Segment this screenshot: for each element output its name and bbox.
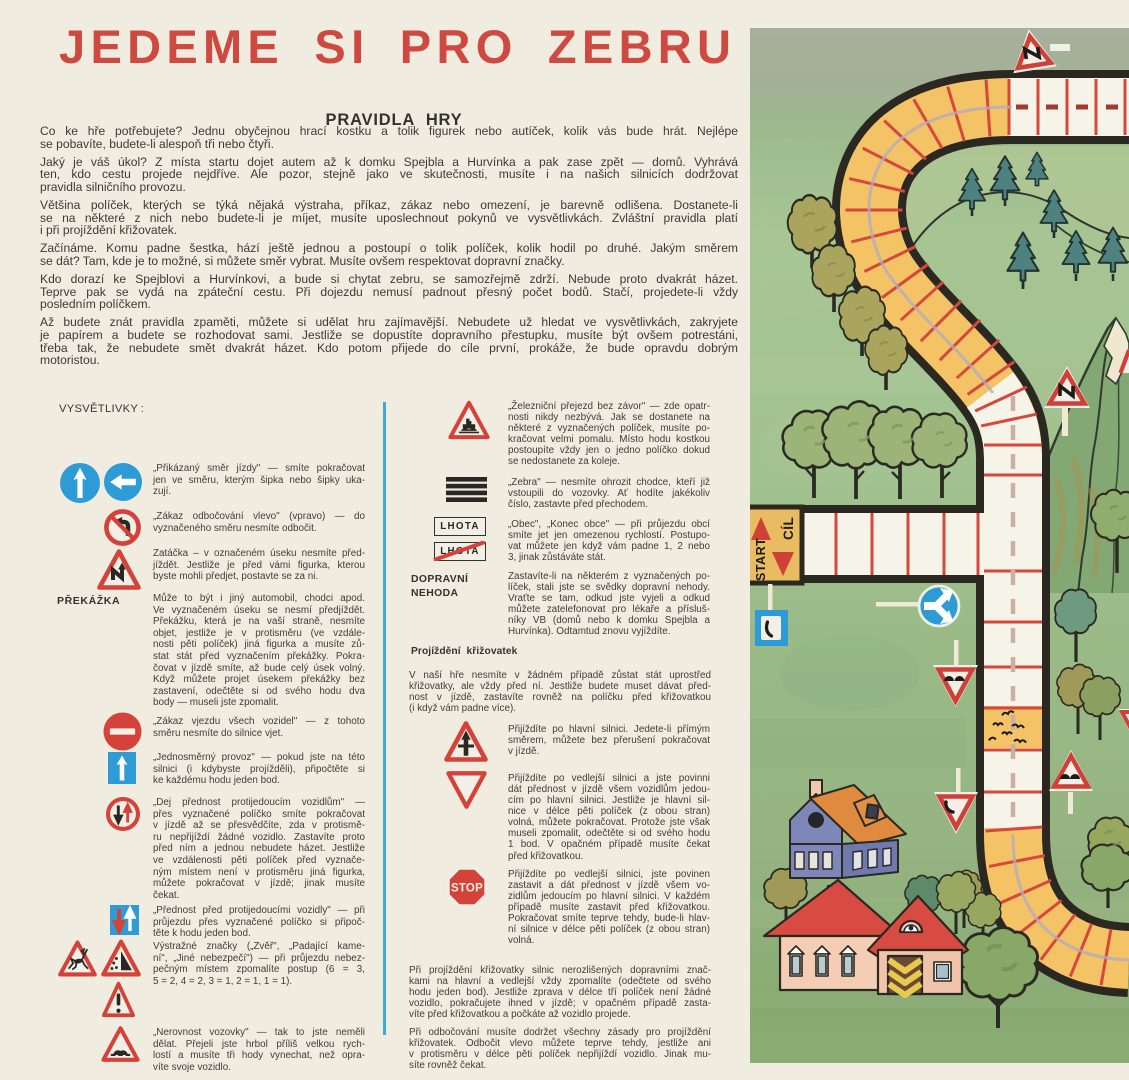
svg-text:START: START — [754, 538, 768, 581]
svg-text:STOP: STOP — [451, 883, 483, 895]
svg-text:CÍL: CÍL — [781, 517, 796, 540]
